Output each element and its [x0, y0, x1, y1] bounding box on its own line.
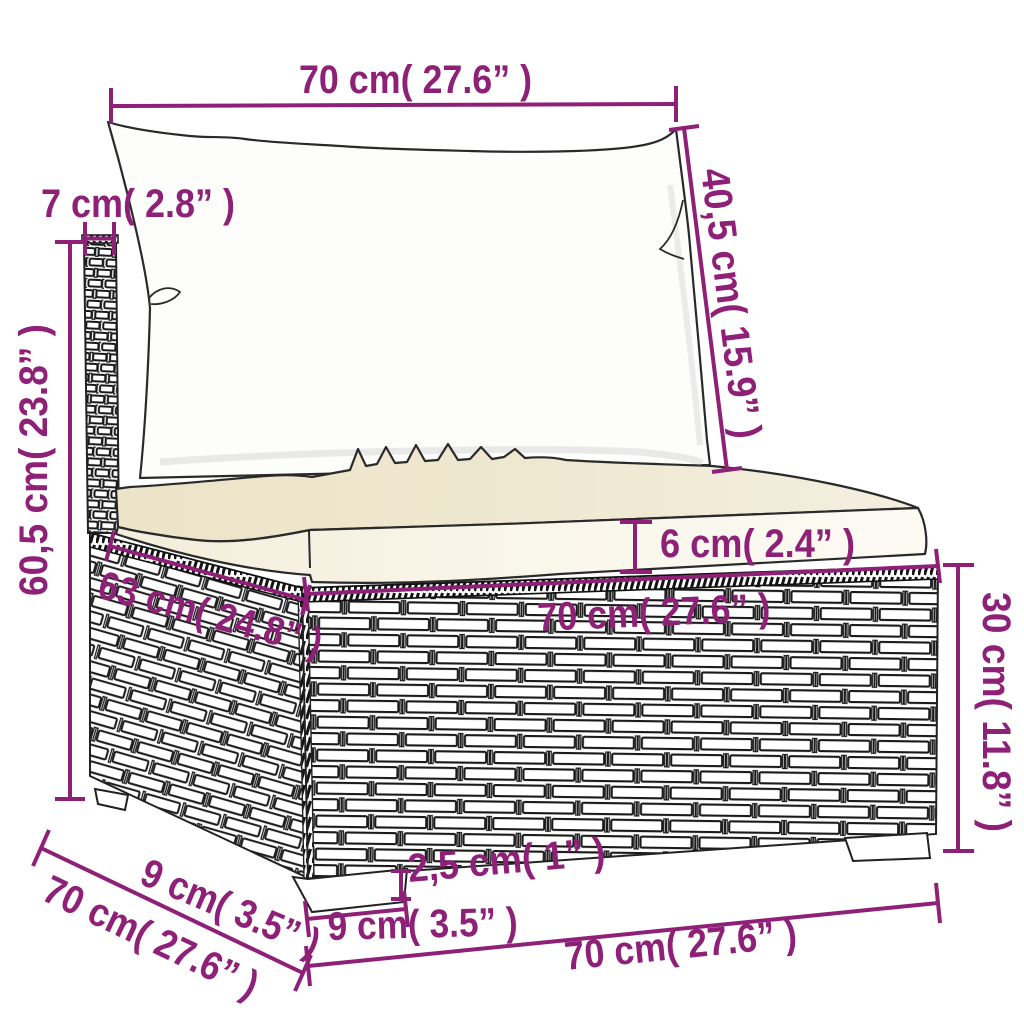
svg-text:70 cm( 27.6” ): 70 cm( 27.6” )	[299, 58, 532, 102]
svg-text:30 cm( 11.8” ): 30 cm( 11.8” )	[974, 592, 1018, 832]
svg-text:7 cm( 2.8” ): 7 cm( 2.8” )	[41, 182, 235, 226]
svg-text:9 cm( 3.5” ): 9 cm( 3.5” )	[327, 900, 518, 949]
svg-text:60,5 cm( 23.8” ): 60,5 cm( 23.8” )	[12, 324, 56, 596]
svg-text:6 cm( 2.4” ): 6 cm( 2.4” )	[660, 522, 855, 566]
